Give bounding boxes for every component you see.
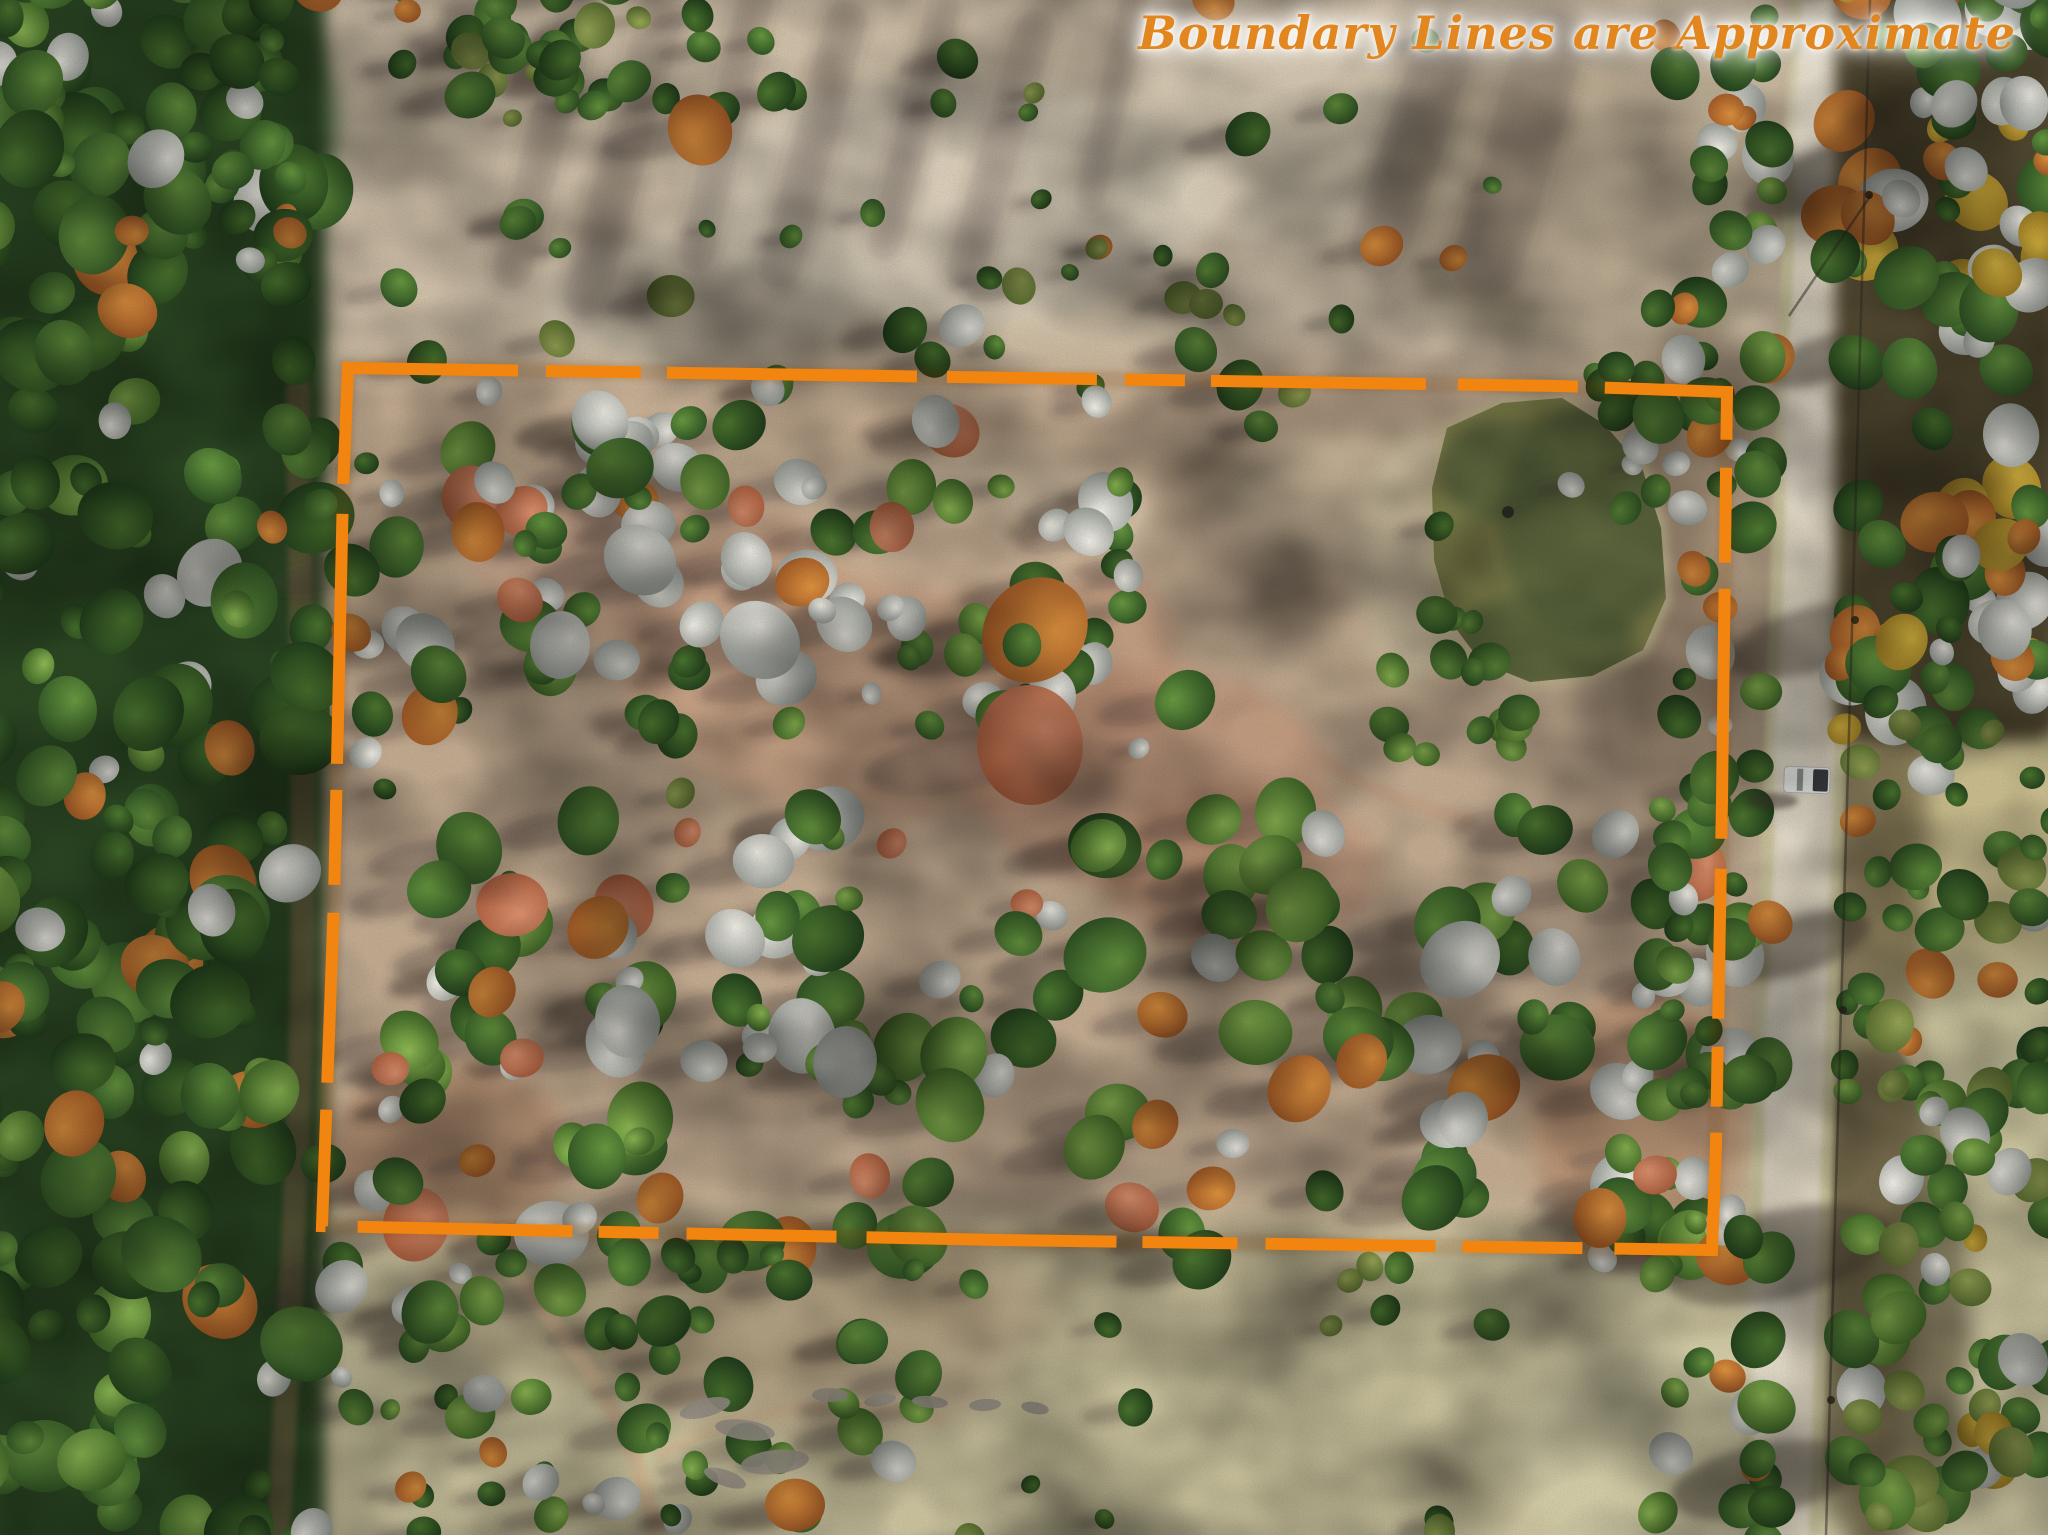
aerial-photo: Boundary Lines are Approximate	[0, 0, 2048, 1535]
photo-grain-overlay	[0, 0, 2048, 1535]
scene-svg	[0, 0, 2048, 1535]
